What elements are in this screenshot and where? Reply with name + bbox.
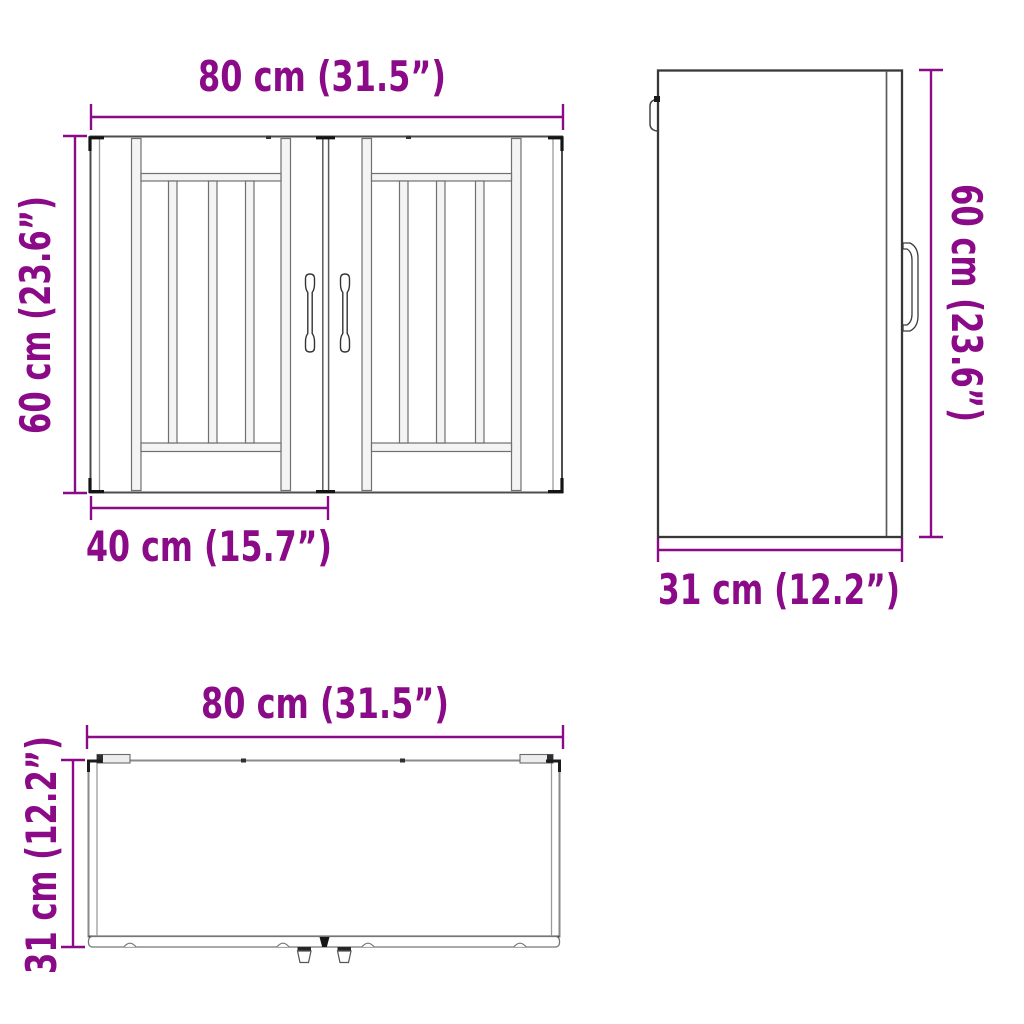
side-height-label: 60 cm (23.6”)	[942, 184, 991, 422]
product-dimension-diagram: 80 cm (31.5”) 60 cm (23.6”) 40 cm (15.7”…	[0, 0, 1024, 1024]
door-top-rail	[141, 174, 281, 182]
front-height-dimension	[63, 136, 87, 493]
door-plank	[169, 181, 178, 443]
side-hinge-icon	[650, 99, 658, 131]
bottom-view	[89, 755, 560, 963]
door-plank	[476, 181, 485, 443]
front-width-label: 80 cm (31.5”)	[198, 52, 446, 101]
back-edge-mark	[400, 759, 405, 763]
side-cabinet-outline	[658, 71, 902, 538]
door-handle-knob-icon	[298, 951, 312, 963]
handles-from-below	[298, 947, 352, 963]
shelf-peg-mark	[266, 136, 271, 140]
door-width-dimension	[91, 496, 328, 520]
bottom-width-label: 80 cm (31.5”)	[201, 679, 449, 728]
door-plank	[400, 181, 409, 443]
door-stile	[132, 139, 142, 491]
door-stile	[512, 139, 522, 491]
side-height-dimension	[919, 70, 943, 537]
side-depth-label: 31 cm (12.2”)	[658, 565, 900, 614]
side-view	[650, 71, 918, 538]
front-width-dimension	[91, 104, 563, 130]
side-depth-dimension	[658, 538, 902, 562]
front-height-label: 60 cm (23.6”)	[11, 196, 60, 434]
door-plank	[437, 181, 446, 443]
shelf-peg-mark	[406, 136, 411, 140]
door-handle-knob-icon	[338, 951, 352, 963]
door-top-rail	[372, 174, 512, 182]
front-cabinet-outline	[91, 137, 563, 493]
door-bottom-rail	[141, 443, 281, 452]
door-plank	[209, 181, 218, 443]
front-view	[90, 136, 562, 493]
back-edge-mark	[241, 759, 246, 763]
side-door-handle-icon	[903, 243, 918, 331]
door-stile	[362, 139, 372, 491]
door-plank	[246, 181, 255, 443]
door-stile	[281, 139, 291, 491]
bottom-width-dimension	[87, 725, 563, 749]
bottom-cabinet-outline	[89, 761, 560, 937]
door-width-label: 40 cm (15.7”)	[86, 522, 332, 571]
bottom-depth-label: 31 cm (12.2”)	[17, 736, 66, 974]
side-hinge-knuckle	[654, 96, 660, 102]
door-bottom-rail	[372, 443, 512, 452]
